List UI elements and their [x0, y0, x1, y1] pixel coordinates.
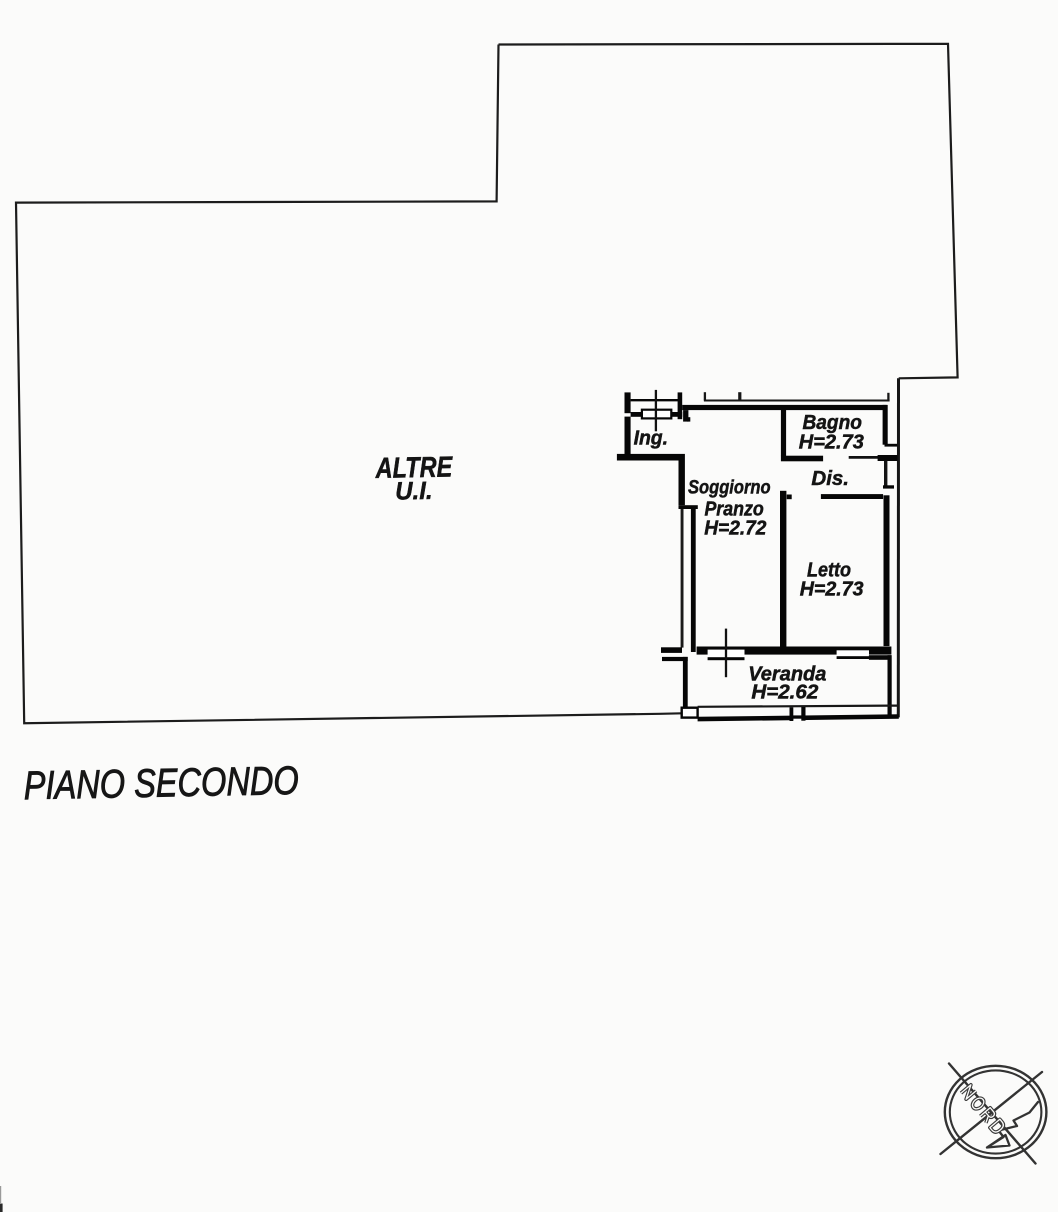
svg-text:PIANO SECONDO: PIANO SECONDO: [23, 758, 299, 808]
svg-text:Ing.: Ing.: [634, 427, 668, 449]
svg-text:Dis.: Dis.: [811, 467, 849, 490]
svg-text:H=2.72: H=2.72: [704, 517, 766, 539]
svg-text:Bagno: Bagno: [802, 411, 861, 434]
svg-text:Soggiorno: Soggiorno: [688, 476, 771, 497]
svg-text:U.I.: U.I.: [395, 477, 433, 505]
svg-text:H=2.73: H=2.73: [800, 578, 864, 600]
svg-text:H=2.62: H=2.62: [751, 682, 819, 704]
svg-text:H=2.73: H=2.73: [799, 432, 864, 454]
